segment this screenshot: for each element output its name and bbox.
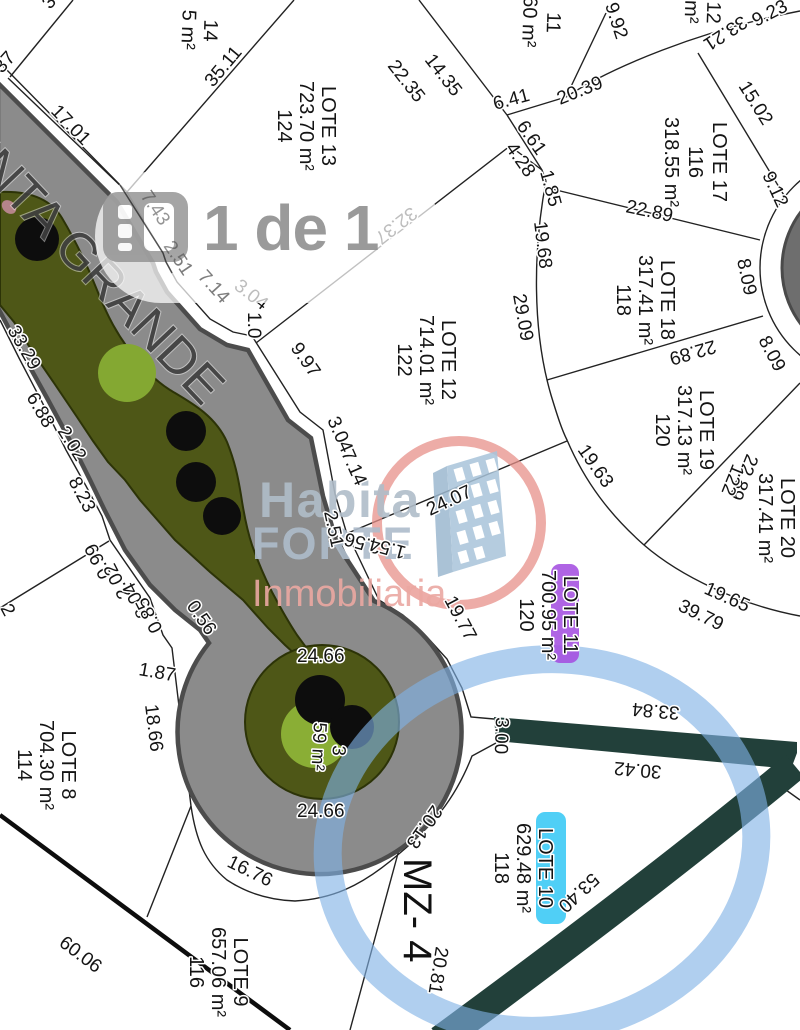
svg-text:714.01 m²: 714.01 m² [415,315,437,405]
svg-text:MZ- 4: MZ- 4 [395,858,439,962]
svg-text:LOTE 20: LOTE 20 [776,478,798,558]
svg-text:118: 118 [612,284,634,316]
svg-text:LOTE 8: LOTE 8 [57,731,79,800]
svg-text:318.55 m²: 318.55 m² [660,117,682,207]
svg-text:118: 118 [490,852,512,884]
svg-text:m²: m² [680,0,703,24]
svg-text:700.95 m²: 700.95 m² [537,570,559,660]
svg-text:30.42: 30.42 [613,757,662,782]
svg-text:3: 3 [327,745,349,757]
svg-text:12: 12 [702,1,725,24]
svg-text:317.13 m²: 317.13 m² [673,385,695,475]
svg-text:14: 14 [199,19,222,42]
svg-text:LOTE 18: LOTE 18 [656,260,678,340]
svg-text:LOTE 19: LOTE 19 [695,390,717,470]
svg-text:1.0: 1.0 [243,312,264,338]
svg-text:11: 11 [542,12,565,34]
svg-text:657.06 m²: 657.06 m² [207,927,229,1017]
svg-text:120: 120 [515,598,537,631]
svg-text:59 m²: 59 m² [306,722,330,772]
svg-text:24.66: 24.66 [297,646,345,667]
svg-text:704.30 m²: 704.30 m² [35,720,57,810]
svg-text:116: 116 [684,146,706,178]
svg-text:LOTE 17: LOTE 17 [708,122,730,202]
svg-text:LOTE 11: LOTE 11 [559,576,581,655]
svg-text:116: 116 [185,956,207,988]
svg-text:124: 124 [273,109,295,142]
svg-text:LOTE 10: LOTE 10 [534,828,556,908]
svg-text:1 de 1: 1 de 1 [203,192,378,264]
svg-text:LOTE 13: LOTE 13 [317,86,339,166]
svg-text:317.41 m²: 317.41 m² [754,473,776,563]
svg-text:60 m²: 60 m² [517,0,541,48]
svg-text:120: 120 [651,413,673,446]
svg-text:629.48 m²: 629.48 m² [512,823,534,913]
svg-text:114: 114 [13,749,35,781]
svg-text:Inmobiliaria: Inmobiliaria [252,573,447,615]
svg-text:723.70 m²: 723.70 m² [295,81,317,171]
svg-text:24.66: 24.66 [297,801,345,822]
svg-text:317.41 m²: 317.41 m² [634,255,656,345]
svg-text:LOTE 9: LOTE 9 [229,938,251,1007]
svg-text:33.84: 33.84 [631,698,681,723]
svg-text:LOTE 12: LOTE 12 [437,320,459,400]
svg-text:5 m²: 5 m² [176,9,199,50]
svg-text:122: 122 [393,343,415,376]
svg-text:3.00: 3.00 [490,717,512,755]
